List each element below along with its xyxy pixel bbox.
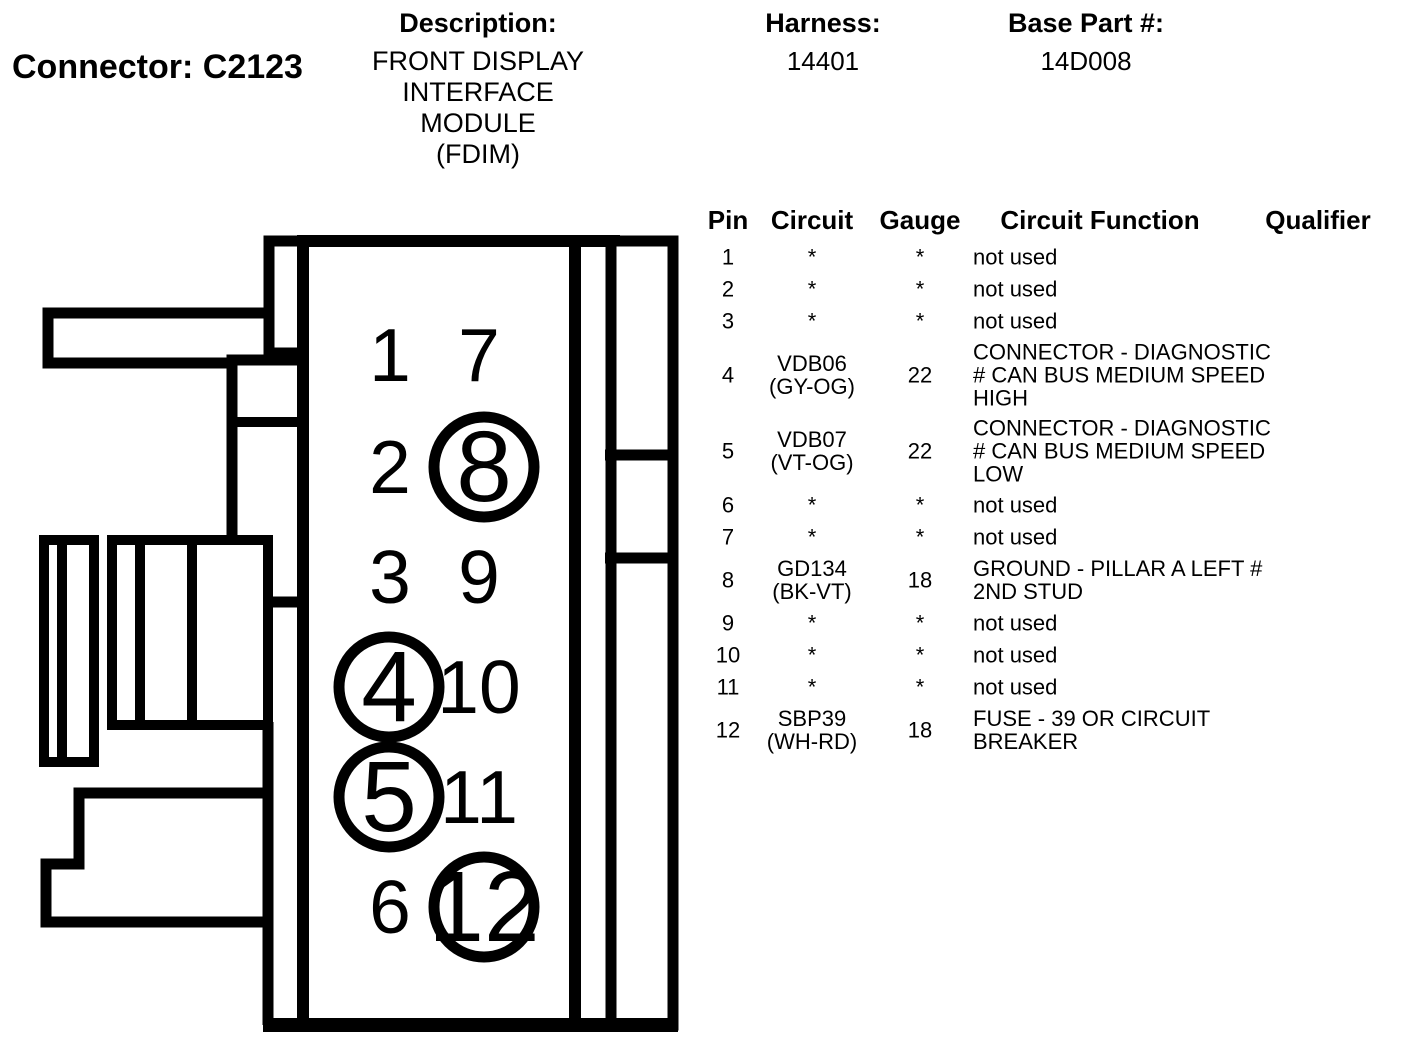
gauge-cell: 22 <box>868 364 972 387</box>
circuit-function-cell: not used <box>973 494 1283 517</box>
circuit-cell: * <box>756 278 868 301</box>
table-row: 2**not used <box>700 273 1408 305</box>
circuit-cell: GD134(BK-VT) <box>756 557 868 603</box>
circuit-cell: SBP39(WH-RD) <box>756 707 868 753</box>
table-row: 4VDB06(GY-OG)22CONNECTOR - DIAGNOSTIC# C… <box>700 337 1408 413</box>
pin-table: Pin Circuit Gauge Circuit Function Quali… <box>700 205 1408 757</box>
gauge-cell: * <box>868 644 972 667</box>
column-header-pin: Pin <box>700 205 756 236</box>
circuit-function-cell: CONNECTOR - DIAGNOSTIC# CAN BUS MEDIUM S… <box>973 417 1283 486</box>
column-header-qualifier: Qualifier <box>1253 205 1383 236</box>
circuit-function-cell: not used <box>973 676 1283 699</box>
pin-cell: 8 <box>700 569 756 592</box>
circuit-function-cell: FUSE - 39 OR CIRCUITBREAKER <box>973 707 1283 753</box>
base-part-block: Base Part #: 14D008 <box>1000 8 1172 77</box>
gauge-cell: * <box>868 246 972 269</box>
pin-table-body: 1**not used2**not used3**not used4VDB06(… <box>700 241 1408 757</box>
table-row: 10**not used <box>700 639 1408 671</box>
circuit-function-cell: CONNECTOR - DIAGNOSTIC# CAN BUS MEDIUM S… <box>973 341 1283 410</box>
circuit-cell: * <box>756 612 868 635</box>
pin-cell: 2 <box>700 278 756 301</box>
pin-cell: 10 <box>700 644 756 667</box>
gauge-cell: * <box>868 310 972 333</box>
pin-number: 3 <box>369 535 411 619</box>
gauge-cell: * <box>868 494 972 517</box>
table-row: 11**not used <box>700 671 1408 703</box>
gauge-cell: * <box>868 526 972 549</box>
pin-cell: 1 <box>700 246 756 269</box>
connector-lock-column <box>611 241 673 1025</box>
pin-number: 11 <box>440 755 518 839</box>
circuit-cell: VDB06(GY-OG) <box>756 352 868 398</box>
circuit-function-cell: not used <box>973 246 1283 269</box>
pin-number: 1 <box>369 313 411 397</box>
gauge-cell: 22 <box>868 440 972 463</box>
gauge-cell: * <box>868 612 972 635</box>
pin-number: 7 <box>458 313 500 397</box>
column-header-gauge: Gauge <box>868 205 972 236</box>
circuit-function-cell: not used <box>973 612 1283 635</box>
pin-cell: 3 <box>700 310 756 333</box>
pin-cell: 9 <box>700 612 756 635</box>
pin-number: 9 <box>458 535 500 619</box>
table-row: 9**not used <box>700 607 1408 639</box>
harness-label: Harness: <box>743 8 903 39</box>
gauge-cell: 18 <box>868 569 972 592</box>
pin-cell: 7 <box>700 526 756 549</box>
pin-cell: 6 <box>700 494 756 517</box>
pin-cell: 12 <box>700 719 756 742</box>
pin-table-header: Pin Circuit Gauge Circuit Function Quali… <box>700 205 1408 241</box>
pin-cell: 5 <box>700 440 756 463</box>
circuit-cell: * <box>756 310 868 333</box>
pin-number: 2 <box>369 425 411 509</box>
pin-number: 4 <box>361 631 417 743</box>
circuit-cell: * <box>756 526 868 549</box>
connector-key-column <box>44 540 94 762</box>
gauge-cell: * <box>868 278 972 301</box>
table-row: 6**not used <box>700 489 1408 521</box>
column-header-circuit-function: Circuit Function <box>1000 205 1200 236</box>
pin-number: 10 <box>437 645 520 729</box>
circuit-cell: VDB07(VT-OG) <box>756 428 868 474</box>
base-part-value: 14D008 <box>1000 46 1172 77</box>
circuit-function-cell: not used <box>973 526 1283 549</box>
pin-cell: 11 <box>700 676 756 699</box>
pin-number: 6 <box>369 865 411 949</box>
connector-drawing: 172839410511612 <box>0 0 700 1060</box>
circuit-cell: * <box>756 644 868 667</box>
pin-number: 8 <box>456 411 512 523</box>
table-row: 12SBP39(WH-RD)18FUSE - 39 OR CIRCUITBREA… <box>700 703 1408 757</box>
pin-number: 12 <box>428 851 539 963</box>
column-header-circuit: Circuit <box>756 205 868 236</box>
circuit-cell: * <box>756 676 868 699</box>
table-row: 8GD134(BK-VT)18GROUND - PILLAR A LEFT #2… <box>700 553 1408 607</box>
gauge-cell: 18 <box>868 719 972 742</box>
pin-cell: 4 <box>700 364 756 387</box>
connector-key-bottom-tab <box>46 793 268 922</box>
harness-value: 14401 <box>743 46 903 77</box>
harness-block: Harness: 14401 <box>743 8 903 77</box>
table-row: 5VDB07(VT-OG)22CONNECTOR - DIAGNOSTIC# C… <box>700 413 1408 489</box>
pin-number: 5 <box>361 741 417 853</box>
circuit-function-cell: not used <box>973 278 1283 301</box>
circuit-cell: * <box>756 494 868 517</box>
circuit-cell: * <box>756 246 868 269</box>
circuit-function-cell: not used <box>973 310 1283 333</box>
circuit-function-cell: GROUND - PILLAR A LEFT #2ND STUD <box>973 557 1283 603</box>
circuit-function-cell: not used <box>973 644 1283 667</box>
table-row: 1**not used <box>700 241 1408 273</box>
gauge-cell: * <box>868 676 972 699</box>
table-row: 7**not used <box>700 521 1408 553</box>
base-part-label: Base Part #: <box>1000 8 1172 39</box>
table-row: 3**not used <box>700 305 1408 337</box>
